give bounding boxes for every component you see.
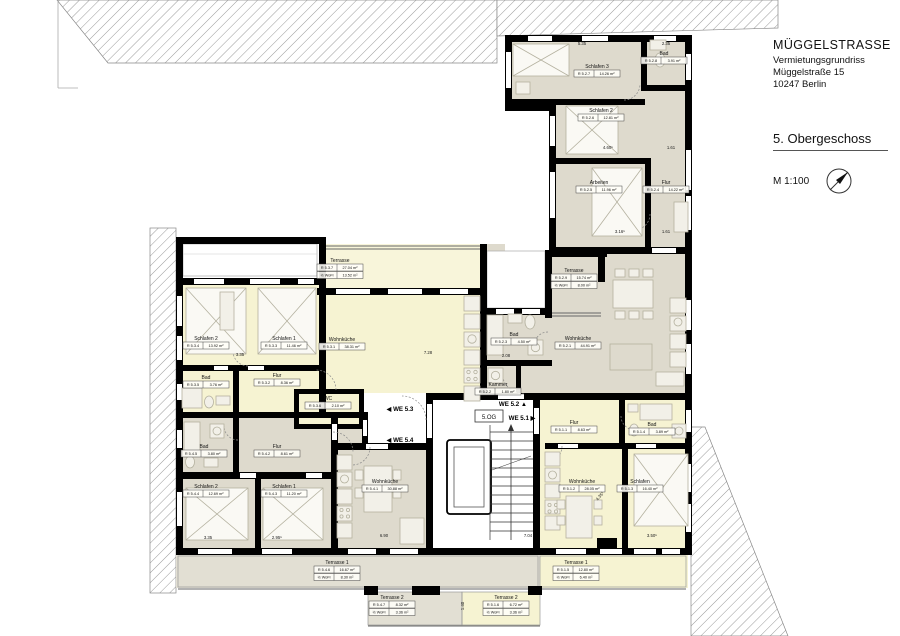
- svg-text:3.91 m²: 3.91 m²: [668, 59, 682, 63]
- svg-text:Terrasse: Terrasse: [330, 258, 349, 264]
- svg-text:R 5.4.2: R 5.4.2: [258, 452, 270, 456]
- svg-text:Flur: Flur: [273, 444, 282, 450]
- dimension-label: 3.35: [236, 352, 245, 357]
- svg-text:Flur: Flur: [662, 180, 671, 186]
- svg-text:11.96 m²: 11.96 m²: [602, 188, 617, 192]
- svg-text:Flur: Flur: [570, 420, 579, 426]
- dimension-label: 1.40: [460, 601, 465, 610]
- core-floor-tag: 5.OG: [475, 410, 503, 422]
- dimension-label: 7.28: [424, 350, 433, 355]
- svg-text:Bad: Bad: [660, 51, 669, 57]
- svg-text:8.32 m²: 8.32 m²: [396, 603, 410, 607]
- svg-text:WC: WC: [324, 396, 333, 402]
- svg-text:Schlafen 2: Schlafen 2: [194, 484, 218, 490]
- unit-entrance-marker-we54: ◀ WE 5.4: [386, 437, 414, 444]
- dimension-label: 3.16⁵: [615, 229, 625, 234]
- svg-text:½ WoFl: ½ WoFl: [317, 576, 330, 580]
- svg-text:Terrasse 2: Terrasse 2: [494, 595, 518, 601]
- svg-text:R 5.3.5: R 5.3.5: [187, 383, 199, 387]
- svg-text:3.36 m²: 3.36 m²: [396, 611, 410, 615]
- dimension-label: 2.35: [662, 41, 671, 46]
- svg-text:Terrasse 1: Terrasse 1: [564, 560, 588, 566]
- svg-text:5.OG: 5.OG: [482, 415, 497, 421]
- svg-text:8.00 m²: 8.00 m²: [578, 284, 592, 288]
- svg-text:Bad: Bad: [202, 375, 211, 381]
- svg-text:30.88 m²: 30.88 m²: [388, 487, 404, 491]
- dimension-label: 4.60⁵: [603, 145, 613, 150]
- svg-text:R 5.2.8: R 5.2.8: [645, 59, 657, 63]
- svg-text:8.61 m²: 8.61 m²: [281, 452, 295, 456]
- svg-text:R 5.4.7: R 5.4.7: [373, 603, 385, 607]
- dimension-label: 7.04: [524, 533, 533, 538]
- svg-text:Kammer: Kammer: [489, 382, 508, 388]
- svg-text:3.89 m²: 3.89 m²: [656, 430, 670, 434]
- svg-text:3.76 m²: 3.76 m²: [210, 383, 224, 387]
- svg-text:Wohnküche: Wohnküche: [569, 479, 596, 485]
- dimension-label: 6.90: [380, 533, 389, 538]
- svg-text:R 5.2.1: R 5.2.1: [559, 344, 571, 348]
- svg-text:2.10 m²: 2.10 m²: [332, 404, 346, 408]
- dimension-label: 1.61: [662, 229, 671, 234]
- svg-text:Wohnküche: Wohnküche: [372, 479, 399, 485]
- svg-text:R 5.2.7: R 5.2.7: [578, 72, 590, 76]
- title-block: MÜGGELSTRASSE Vermietungsgrundriss Mügge…: [773, 38, 895, 195]
- svg-text:Schlafen 3: Schlafen 3: [585, 64, 609, 70]
- svg-text:8.63 m²: 8.63 m²: [578, 428, 592, 432]
- dimension-label: 3.35: [204, 535, 213, 540]
- svg-text:16.67 m²: 16.67 m²: [340, 568, 356, 572]
- svg-text:13.92 m²: 13.92 m²: [209, 344, 225, 348]
- svg-text:R 5.4.6: R 5.4.6: [318, 568, 330, 572]
- svg-text:11.46 m²: 11.46 m²: [287, 344, 302, 348]
- svg-text:13.52 m²: 13.52 m²: [343, 274, 359, 278]
- svg-text:Schlafen 1: Schlafen 1: [272, 484, 296, 490]
- svg-text:Terrasse 1: Terrasse 1: [325, 560, 349, 566]
- svg-text:R 5.4.3: R 5.4.3: [265, 492, 277, 496]
- scale-label: M 1:100: [773, 176, 809, 187]
- svg-text:R 5.1.5: R 5.1.5: [557, 568, 569, 572]
- dimension-label: 1.61: [667, 145, 676, 150]
- svg-text:R 5.2.5: R 5.2.5: [580, 188, 592, 192]
- dimension-label: 3.50⁵: [647, 533, 657, 538]
- svg-text:Schlafen: Schlafen: [630, 479, 650, 485]
- svg-text:12.81 m²: 12.81 m²: [604, 116, 620, 120]
- svg-text:R 5.2.6: R 5.2.6: [582, 116, 594, 120]
- plan-drawing: Schlafen 3R 5.2.714.26 m²BadR 5.2.83.91 …: [0, 0, 900, 636]
- svg-text:R 5.3.3: R 5.3.3: [265, 344, 277, 348]
- drawing-type: Vermietungsgrundriss: [773, 55, 895, 67]
- svg-text:28.05 m²: 28.05 m²: [585, 487, 601, 491]
- dimension-label: 2.08: [502, 353, 511, 358]
- svg-text:11.20 m²: 11.20 m²: [287, 492, 302, 496]
- svg-text:Terrasse: Terrasse: [564, 268, 583, 274]
- svg-text:R 5.2.2: R 5.2.2: [479, 390, 491, 394]
- svg-text:Terrasse 2: Terrasse 2: [380, 595, 404, 601]
- svg-text:12.80 m²: 12.80 m²: [579, 568, 595, 572]
- svg-text:14.26 m²: 14.26 m²: [600, 72, 616, 76]
- svg-text:R 5.3.4: R 5.3.4: [187, 344, 199, 348]
- svg-text:Schlafen 2: Schlafen 2: [589, 108, 613, 114]
- svg-text:3.80 m²: 3.80 m²: [208, 452, 222, 456]
- svg-text:16.40 m²: 16.40 m²: [643, 487, 659, 491]
- svg-text:14.22 m²: 14.22 m²: [669, 188, 685, 192]
- svg-text:8.30 m²: 8.30 m²: [341, 576, 355, 580]
- svg-text:12.69 m²: 12.69 m²: [209, 492, 225, 496]
- address-street: Müggelstraße 15: [773, 67, 895, 79]
- unit-entrance-marker-we51: WE 5.1 ▶: [509, 415, 536, 422]
- svg-text:R 5.1.1: R 5.1.1: [555, 428, 567, 432]
- svg-text:½ WoFl: ½ WoFl: [556, 576, 569, 580]
- svg-text:Flur: Flur: [273, 373, 282, 379]
- svg-text:R 5.3.7: R 5.3.7: [321, 266, 333, 270]
- svg-text:Bad: Bad: [200, 444, 209, 450]
- svg-text:R 5.3.2: R 5.3.2: [258, 381, 270, 385]
- svg-text:4.50 m²: 4.50 m²: [518, 340, 532, 344]
- svg-text:R 5.4.4: R 5.4.4: [187, 492, 199, 496]
- svg-text:R 5.4.1: R 5.4.1: [366, 487, 378, 491]
- svg-text:6.40 m²: 6.40 m²: [580, 576, 594, 580]
- svg-text:R 5.3.6: R 5.3.6: [309, 404, 321, 408]
- svg-text:27.04 m²: 27.04 m²: [343, 266, 359, 270]
- svg-text:8.36 m²: 8.36 m²: [281, 381, 295, 385]
- north-arrow-icon: [825, 167, 853, 195]
- svg-text:R 5.2.3: R 5.2.3: [495, 340, 507, 344]
- svg-text:3.36 m²: 3.36 m²: [510, 611, 524, 615]
- svg-text:R 5.2.4: R 5.2.4: [647, 188, 659, 192]
- svg-text:R 5.2.9: R 5.2.9: [555, 276, 567, 280]
- dimension-label: 2.95⁵: [272, 535, 282, 540]
- dimension-label: 5.35: [578, 41, 587, 46]
- svg-text:R 5.1.6: R 5.1.6: [487, 603, 499, 607]
- svg-text:1.80 m²: 1.80 m²: [502, 390, 516, 394]
- floorplan-svg: Schlafen 3R 5.2.714.26 m²BadR 5.2.83.91 …: [0, 0, 900, 636]
- floor-title: 5. Obergeschoss: [773, 131, 888, 151]
- svg-text:½ WoFl: ½ WoFl: [486, 611, 499, 615]
- svg-text:Wohnküche: Wohnküche: [329, 337, 356, 343]
- svg-text:15.74 m²: 15.74 m²: [577, 276, 593, 280]
- project-title: MÜGGELSTRASSE: [773, 38, 895, 52]
- svg-text:½ WoFl: ½ WoFl: [554, 284, 567, 288]
- svg-text:R 5.4.5: R 5.4.5: [185, 452, 197, 456]
- svg-text:38.31 m²: 38.31 m²: [345, 345, 361, 349]
- svg-text:R 5.1.3: R 5.1.3: [621, 487, 633, 491]
- svg-text:R 5.3.1: R 5.3.1: [323, 345, 335, 349]
- svg-text:Wohnküche: Wohnküche: [565, 336, 592, 342]
- svg-text:½ WoFl: ½ WoFl: [372, 611, 385, 615]
- svg-text:Bad: Bad: [510, 332, 519, 338]
- floorplan-page: Schlafen 3R 5.2.714.26 m²BadR 5.2.83.91 …: [0, 0, 900, 636]
- unit-entrance-marker-we53: ◀ WE 5.3: [386, 406, 414, 413]
- svg-text:R 5.1.4: R 5.1.4: [633, 430, 645, 434]
- svg-text:Bad: Bad: [648, 422, 657, 428]
- address-city: 10247 Berlin: [773, 79, 895, 91]
- svg-text:6.72 m²: 6.72 m²: [510, 603, 524, 607]
- svg-text:Schlafen 1: Schlafen 1: [272, 336, 296, 342]
- svg-text:Schlafen 2: Schlafen 2: [194, 336, 218, 342]
- svg-text:R 5.1.2: R 5.1.2: [563, 487, 575, 491]
- svg-text:½ WoFl: ½ WoFl: [320, 274, 333, 278]
- elevator: [447, 440, 491, 514]
- svg-text:Arbeiten: Arbeiten: [590, 180, 609, 186]
- unit-entrance-marker-we52: WE 5.2 ▲: [499, 401, 527, 408]
- svg-text:44.91 m²: 44.91 m²: [581, 344, 597, 348]
